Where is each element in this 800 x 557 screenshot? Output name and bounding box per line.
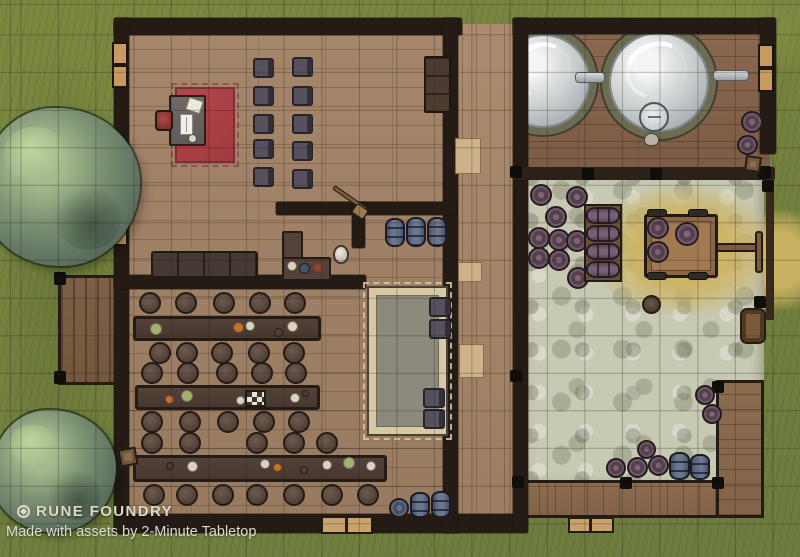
floor-crate — [118, 447, 139, 468]
food-bowl — [233, 322, 244, 333]
plate — [287, 321, 298, 332]
window-brewery-right — [758, 44, 774, 92]
steps-deck — [568, 517, 614, 533]
audience-chair — [253, 167, 274, 187]
mug — [300, 466, 308, 474]
cart-barrel — [647, 217, 669, 239]
brewery-clip — [523, 26, 763, 174]
open-book — [180, 114, 193, 135]
plate-salad — [343, 457, 355, 469]
bar-blue-jar — [299, 263, 310, 274]
yard-barrel — [528, 247, 550, 269]
cellar-barrel — [431, 491, 451, 518]
watermark-brand-text: RUNE FOUNDRY — [36, 503, 173, 520]
cart-crossbar — [755, 231, 763, 273]
white-pot — [333, 245, 349, 264]
tavern-brewery-battle-map: RUNE FOUNDRY Made with assets by 2-Minut… — [0, 0, 800, 557]
stool — [251, 362, 273, 384]
rack-barrel — [586, 243, 620, 260]
plate — [322, 460, 332, 470]
plate — [366, 461, 376, 471]
stool — [316, 432, 338, 454]
yard-barrel — [702, 404, 722, 424]
cellar-barrel — [410, 492, 430, 518]
yard-barrel — [530, 184, 552, 206]
storage-barrel — [385, 218, 405, 247]
stool — [141, 411, 163, 433]
post-fence-2 — [754, 296, 766, 308]
yard-barrel — [695, 385, 715, 405]
rug-chair — [423, 388, 445, 408]
brewery-crate — [744, 155, 762, 173]
yard-fence — [766, 178, 774, 320]
audience-chair — [253, 86, 274, 106]
stool — [357, 484, 379, 506]
rack-barrel — [586, 261, 620, 278]
yard-barrel-side — [690, 454, 710, 480]
stool — [248, 342, 270, 364]
stool — [179, 411, 201, 433]
vat-pipe-middle — [575, 72, 605, 83]
cart-barrel — [647, 241, 669, 263]
watermark-brand: RUNE FOUNDRY — [17, 503, 173, 520]
audience-chair — [292, 57, 313, 77]
stool — [283, 342, 305, 364]
plate-salad — [181, 390, 193, 402]
yard-barrel-side — [669, 452, 690, 480]
audience-chair — [253, 58, 274, 78]
plate — [260, 459, 270, 469]
stool — [211, 342, 233, 364]
plate — [290, 393, 300, 403]
audience-chair — [292, 86, 313, 106]
mug — [274, 328, 283, 337]
cart-barrel — [675, 222, 699, 246]
rug-chair — [429, 297, 451, 317]
wall-brewery-top — [513, 18, 775, 34]
cart-wheel — [688, 272, 708, 280]
stool — [288, 411, 310, 433]
mug — [302, 390, 309, 397]
stool — [249, 292, 271, 314]
bench-couch — [151, 251, 258, 278]
vat-jug — [644, 133, 659, 146]
stool — [285, 362, 307, 384]
cellar-barrel-lid — [389, 498, 409, 518]
audience-chair — [292, 141, 313, 161]
brewery-lid — [737, 135, 758, 155]
rack-barrel — [586, 207, 620, 224]
stool — [141, 432, 163, 454]
wall-hallway-right — [513, 18, 528, 533]
steps-south-door — [321, 516, 373, 534]
stool — [176, 342, 198, 364]
food-bowl — [273, 463, 282, 472]
stool — [253, 411, 275, 433]
stool — [177, 362, 199, 384]
stool — [212, 484, 234, 506]
stool — [216, 362, 238, 384]
yard-stump — [642, 295, 661, 314]
window-left-upper — [112, 42, 128, 88]
bar-red-jar — [313, 263, 322, 272]
hall-doormat-top — [455, 138, 481, 174]
brewery-lid — [741, 111, 763, 133]
yard-barrel — [627, 457, 648, 478]
bar-plate — [287, 261, 297, 271]
stool — [246, 484, 268, 506]
vat-pipe-right — [713, 70, 749, 81]
stool — [321, 484, 343, 506]
storage-barrel — [427, 217, 447, 247]
post-yard-5 — [712, 477, 724, 489]
porch-post-bottom — [54, 371, 66, 384]
yard-barrel — [548, 249, 570, 271]
post-yard-3 — [620, 477, 632, 489]
yard-barrel — [528, 227, 550, 249]
lecturer-stool — [155, 110, 173, 131]
deck-right — [716, 380, 764, 518]
stool — [149, 342, 171, 364]
stool — [246, 432, 268, 454]
watermark-credit: Made with assets by 2-Minute Tabletop — [6, 524, 256, 540]
stool — [283, 484, 305, 506]
audience-chair — [253, 139, 274, 159]
cart-wheel — [647, 272, 667, 280]
wall-top — [114, 18, 462, 35]
post-beam-1 — [510, 166, 522, 178]
stool — [141, 362, 163, 384]
rune-foundry-logo-icon — [17, 505, 30, 518]
cart-wheel — [688, 209, 708, 217]
plate — [236, 396, 245, 405]
post-fence-1 — [762, 180, 774, 192]
cart-wheel — [647, 209, 667, 217]
post-beam-2 — [582, 168, 594, 180]
vat-hatch — [639, 102, 669, 132]
hall-doormat-lower — [459, 344, 484, 378]
food-bowl — [165, 395, 174, 404]
post-yard-2 — [512, 476, 524, 488]
stool — [217, 411, 239, 433]
stool — [213, 292, 235, 314]
stool — [283, 432, 305, 454]
water-trough — [740, 308, 766, 344]
stool — [175, 292, 197, 314]
yard-barrel — [606, 458, 626, 478]
stool — [139, 292, 161, 314]
stool — [179, 432, 201, 454]
audience-chair — [292, 114, 313, 134]
courtyard-beam — [513, 167, 775, 180]
yard-barrel — [545, 206, 567, 228]
chess-board — [245, 390, 266, 407]
audience-chair — [292, 169, 313, 189]
plate — [245, 321, 255, 331]
storage-barrel — [406, 217, 426, 247]
stool — [284, 292, 306, 314]
post-yard-1 — [510, 370, 522, 382]
hall-doormat-mid — [458, 262, 482, 282]
yard-barrel — [648, 455, 669, 476]
mug — [166, 462, 174, 470]
rack-barrel — [586, 225, 620, 242]
wall-cabinet — [424, 56, 451, 113]
plate-salad — [150, 323, 162, 335]
left-porch — [58, 275, 122, 385]
stool — [176, 484, 198, 506]
porch-post-top — [54, 272, 66, 285]
ink-cup — [188, 134, 197, 143]
rug-chair — [429, 319, 451, 339]
audience-chair — [253, 114, 274, 134]
rug-chair — [423, 409, 445, 429]
post-beam-3 — [650, 168, 662, 180]
plate — [187, 461, 198, 472]
